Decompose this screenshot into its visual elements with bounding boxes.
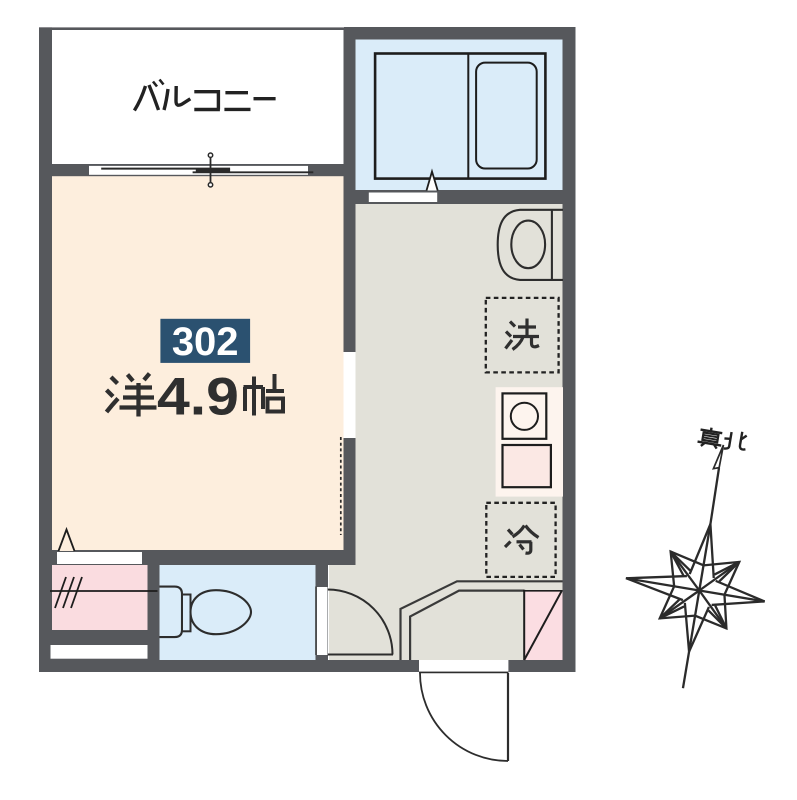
svg-text:4.9: 4.9 (157, 368, 239, 427)
svg-text:302: 302 (172, 320, 239, 364)
